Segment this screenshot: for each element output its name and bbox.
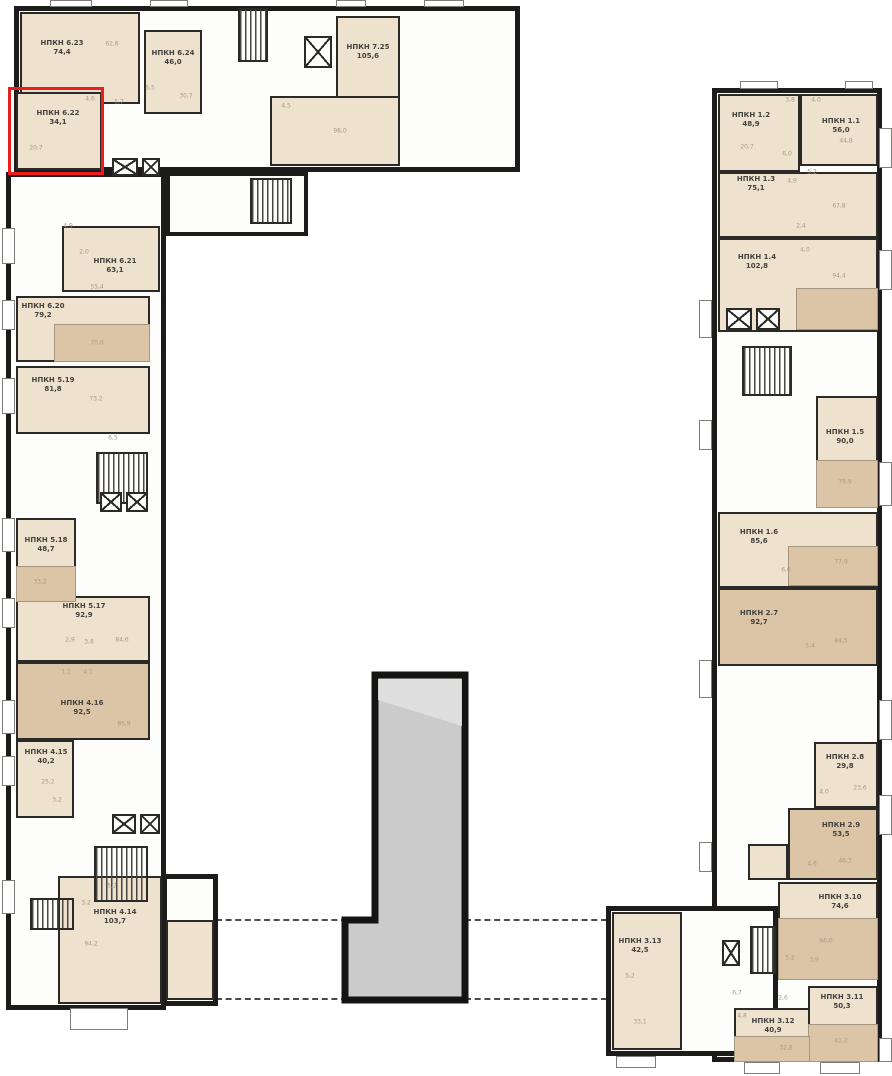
floor-plan: НПКН 6.2374,462,6НПКН 6.2446,030,7НПКН 7…	[0, 0, 892, 1076]
unit-area: 53,5	[822, 830, 860, 839]
tech-area: 4,9	[63, 223, 73, 230]
unit-subarea-3.13: 33,1	[633, 1019, 646, 1026]
unit-subarea-1.1: 44,8	[839, 138, 852, 145]
unit-label-6.23[interactable]: НПКН 6.2374,4	[40, 39, 83, 57]
balcony	[424, 0, 464, 7]
unit-name: НПКН 6.23	[40, 39, 83, 48]
unit-6.24[interactable]	[144, 30, 202, 114]
unit-area: 40,9	[751, 1026, 794, 1035]
unit-subarea-2.8: 23,6	[853, 785, 866, 792]
unit-name: НПКН 5.18	[24, 536, 67, 545]
dashed-line	[216, 919, 347, 921]
balcony	[879, 128, 892, 168]
unit-area: 48,7	[24, 545, 67, 554]
tech-area: 4,9	[787, 178, 797, 185]
unit-area: 50,3	[820, 1002, 863, 1011]
unit-name: НПКН 3.11	[820, 993, 863, 1002]
unit-name: НПКН 4.15	[24, 748, 67, 757]
unit-area: 46,0	[151, 58, 194, 67]
tech-area: 5,4	[805, 643, 815, 650]
unit-name: НПКН 6.20	[21, 302, 64, 311]
unit-area: 74,4	[40, 48, 83, 57]
tech-area: 1,1	[61, 669, 71, 676]
unit-name: НПКН 1.1	[822, 117, 860, 126]
balcony	[2, 598, 15, 628]
unit-name: НПКН 3.10	[818, 893, 861, 902]
stairs-icon	[238, 8, 268, 62]
unit-name: НПКН 1.3	[737, 175, 775, 184]
unit-subarea-3.10: 66,0	[819, 938, 832, 945]
unit-label-2.8[interactable]: НПКН 2.829,8	[826, 753, 864, 771]
balcony	[2, 700, 15, 734]
balcony	[879, 462, 892, 506]
unit-name: НПКН 1.5	[826, 428, 864, 437]
balcony	[2, 300, 15, 330]
unit-3.13[interactable]	[612, 912, 682, 1050]
tech-area: 2,9	[65, 637, 75, 644]
unit-subarea-4.14: 94,2	[84, 941, 97, 948]
unit-area: 79,2	[21, 311, 64, 320]
tech-area: 4,0	[819, 789, 829, 796]
unit-label-6.21[interactable]: НПКН 6.2163,1	[93, 257, 136, 275]
unit-label-2.7[interactable]: НПКН 2.792,7	[740, 609, 778, 627]
tech-area: 4,8	[737, 1013, 747, 1020]
balcony	[70, 1008, 128, 1030]
elevator-icon	[142, 158, 160, 176]
tech-area: 6,0	[782, 151, 792, 158]
balcony	[2, 756, 15, 786]
unit-label-5.17[interactable]: НПКН 5.1792,9	[62, 602, 105, 620]
unit-subarea-5.19: 73,2	[89, 396, 102, 403]
unit-subarea-7.25: 98,0	[333, 128, 346, 135]
unit-area: 103,7	[93, 917, 136, 926]
tech-area: 4,6	[807, 861, 817, 868]
unit-name: НПКН 1.2	[732, 111, 770, 120]
unit-3.12-main-room[interactable]	[734, 1036, 810, 1062]
unit-area: 85,6	[740, 537, 778, 546]
stairs-icon	[742, 346, 792, 396]
unit-label-5.18[interactable]: НПКН 5.1848,7	[24, 536, 67, 554]
unit-label-2.9[interactable]: НПКН 2.953,5	[822, 821, 860, 839]
unit-area: 56,0	[822, 126, 860, 135]
elevator-icon	[126, 492, 148, 512]
balcony	[879, 795, 892, 835]
unit-name: НПКН 2.9	[822, 821, 860, 830]
unit-name: НПКН 3.13	[618, 937, 661, 946]
unit-name: НПКН 1.4	[738, 253, 776, 262]
unit-area: 92,5	[60, 708, 103, 717]
unit-2.9[interactable]	[788, 808, 878, 880]
tech-area: 5,2	[107, 883, 117, 890]
highlight-box-unit-6.22[interactable]	[8, 87, 104, 175]
unit-subarea-6.21: 55,4	[90, 284, 103, 291]
unit-area: 40,2	[24, 757, 67, 766]
unit-label-1.6[interactable]: НПКН 1.685,6	[740, 528, 778, 546]
unit-4.14-part[interactable]	[166, 920, 214, 1000]
balcony	[699, 660, 712, 698]
unit-subarea-1.5: 79,9	[838, 479, 851, 486]
unit-subarea-1.2: 20,7	[740, 144, 753, 151]
tech-area: 4,0	[800, 247, 810, 254]
tech-area: 2,0	[79, 249, 89, 256]
balcony	[879, 250, 892, 290]
unit-subarea-5.17: 84,6	[115, 637, 128, 644]
tech-area: 4,0	[811, 97, 821, 104]
unit-label-3.10[interactable]: НПКН 3.1074,6	[818, 893, 861, 911]
unit-label-1.2[interactable]: НПКН 1.248,9	[732, 111, 770, 129]
balcony	[2, 518, 15, 552]
dashed-line	[216, 998, 347, 1000]
unit-label-1.1[interactable]: НПКН 1.156,0	[822, 117, 860, 135]
unit-label-1.4[interactable]: НПКН 1.4102,8	[738, 253, 776, 271]
unit-1.4-main-room[interactable]	[796, 288, 878, 330]
stairs-icon	[30, 898, 74, 930]
unit-subarea-4.16: 85,9	[117, 721, 130, 728]
unit-name: НПКН 6.24	[151, 49, 194, 58]
unit-area: 29,8	[826, 762, 864, 771]
unit-label-1.3[interactable]: НПКН 1.375,1	[737, 175, 775, 193]
elevator-icon	[140, 814, 160, 834]
unit-name: НПКН 1.6	[740, 528, 778, 537]
unit-label-3.12[interactable]: НПКН 3.1240,9	[751, 1017, 794, 1035]
unit-subarea-2.7: 84,5	[834, 638, 847, 645]
stairs-icon	[250, 178, 292, 224]
balcony	[2, 228, 15, 264]
dashed-line	[465, 919, 607, 921]
unit-area: 81,8	[31, 385, 74, 394]
elevator-icon	[726, 308, 752, 330]
tech-area: 6,5	[108, 435, 118, 442]
balcony	[699, 842, 712, 872]
elevator-icon	[100, 492, 122, 512]
tech-area: 2,6	[778, 995, 788, 1002]
balcony	[336, 0, 366, 7]
unit-subarea-3.12: 32,8	[779, 1045, 792, 1052]
unit-label-4.15[interactable]: НПКН 4.1540,2	[24, 748, 67, 766]
unit-subarea-1.6: 77,9	[834, 559, 847, 566]
elevator-icon	[756, 308, 780, 330]
tech-area: 4,1	[83, 669, 93, 676]
balcony	[699, 300, 712, 338]
unit-label-1.5[interactable]: НПКН 1.590,0	[826, 428, 864, 446]
tech-area: 4,5	[281, 103, 291, 110]
tech-area: 5,2	[785, 955, 795, 962]
balcony	[616, 1056, 656, 1068]
unit-area: 90,0	[826, 437, 864, 446]
unit-name: НПКН 2.7	[740, 609, 778, 618]
tech-area: 3,9	[809, 957, 819, 964]
unit-name: НПКН 7.25	[346, 43, 389, 52]
balcony	[2, 378, 15, 414]
unit-2.8[interactable]	[814, 742, 878, 808]
tech-area: 5,2	[807, 169, 817, 176]
unit-subarea-3.11: 41,2	[834, 1038, 847, 1045]
unit-name: НПКН 5.19	[31, 376, 74, 385]
unit-label-3.13[interactable]: НПКН 3.1342,5	[618, 937, 661, 955]
unit-area: 102,8	[738, 262, 776, 271]
tech-area: 2,4	[796, 223, 806, 230]
balcony	[820, 1062, 860, 1074]
unit-2.9-corridor[interactable]	[748, 844, 788, 880]
unit-area: 75,1	[737, 184, 775, 193]
unit-area: 42,5	[618, 946, 661, 955]
tech-area: 6,7	[732, 990, 742, 997]
balcony	[50, 0, 92, 7]
unit-subarea-6.24: 30,7	[179, 93, 192, 100]
tech-area: 5,7	[114, 99, 124, 106]
stairs-icon	[94, 846, 148, 902]
unit-subarea-4.15: 25,2	[41, 779, 54, 786]
unit-area: 74,6	[818, 902, 861, 911]
unit-subarea-2.9: 46,3	[838, 858, 851, 865]
elevator-icon	[304, 36, 332, 68]
tech-area: 3,8	[84, 639, 94, 646]
elevator-icon	[112, 158, 138, 176]
unit-name: НПКН 2.8	[826, 753, 864, 762]
unit-label-5.19[interactable]: НПКН 5.1981,8	[31, 376, 74, 394]
tech-area: 6,0	[781, 567, 791, 574]
balcony	[879, 700, 892, 740]
dashed-line	[465, 998, 607, 1000]
balcony	[845, 81, 873, 89]
unit-label-6.24[interactable]: НПКН 6.2446,0	[151, 49, 194, 67]
unit-3.10-main-room[interactable]	[778, 918, 878, 980]
unit-area: 105,6	[346, 52, 389, 61]
unit-name: НПКН 4.14	[93, 908, 136, 917]
unit-area: 63,1	[93, 266, 136, 275]
unit-subarea-1.4: 94,4	[832, 273, 845, 280]
balcony	[150, 0, 188, 7]
unit-area: 92,7	[740, 618, 778, 627]
unit-1.6-main-room[interactable]	[788, 546, 878, 586]
balcony	[744, 1062, 780, 1074]
unit-label-4.14[interactable]: НПКН 4.14103,7	[93, 908, 136, 926]
balcony	[699, 420, 712, 450]
unit-label-4.16[interactable]: НПКН 4.1692,5	[60, 699, 103, 717]
unit-area: 48,9	[732, 120, 770, 129]
unit-name: НПКН 4.16	[60, 699, 103, 708]
unit-name: НПКН 6.21	[93, 257, 136, 266]
tower-footprint	[340, 670, 472, 1010]
unit-subarea-1.3: 67,8	[832, 203, 845, 210]
unit-label-3.11[interactable]: НПКН 3.1150,3	[820, 993, 863, 1011]
unit-label-7.25[interactable]: НПКН 7.25105,6	[346, 43, 389, 61]
tech-area: 3,8	[785, 97, 795, 104]
unit-name: НПКН 5.17	[62, 602, 105, 611]
balcony	[879, 1038, 892, 1062]
unit-label-6.20[interactable]: НПКН 6.2079,2	[21, 302, 64, 320]
unit-1.2[interactable]	[718, 94, 800, 172]
tech-area: 5,5	[145, 85, 155, 92]
tech-area: 3,2	[81, 900, 91, 907]
balcony	[740, 81, 778, 89]
tech-area: 5,2	[625, 973, 635, 980]
stairs-icon	[750, 926, 776, 974]
unit-subarea-5.18: 33,2	[33, 579, 46, 586]
tech-area: 3,2	[52, 797, 62, 804]
elevator-icon	[112, 814, 136, 834]
unit-area: 92,9	[62, 611, 105, 620]
balcony	[2, 880, 15, 914]
unit-name: НПКН 3.12	[751, 1017, 794, 1026]
unit-subarea-6.20: 70,0	[90, 340, 103, 347]
unit-subarea-6.23: 62,6	[105, 41, 118, 48]
elevator-icon	[722, 940, 740, 966]
